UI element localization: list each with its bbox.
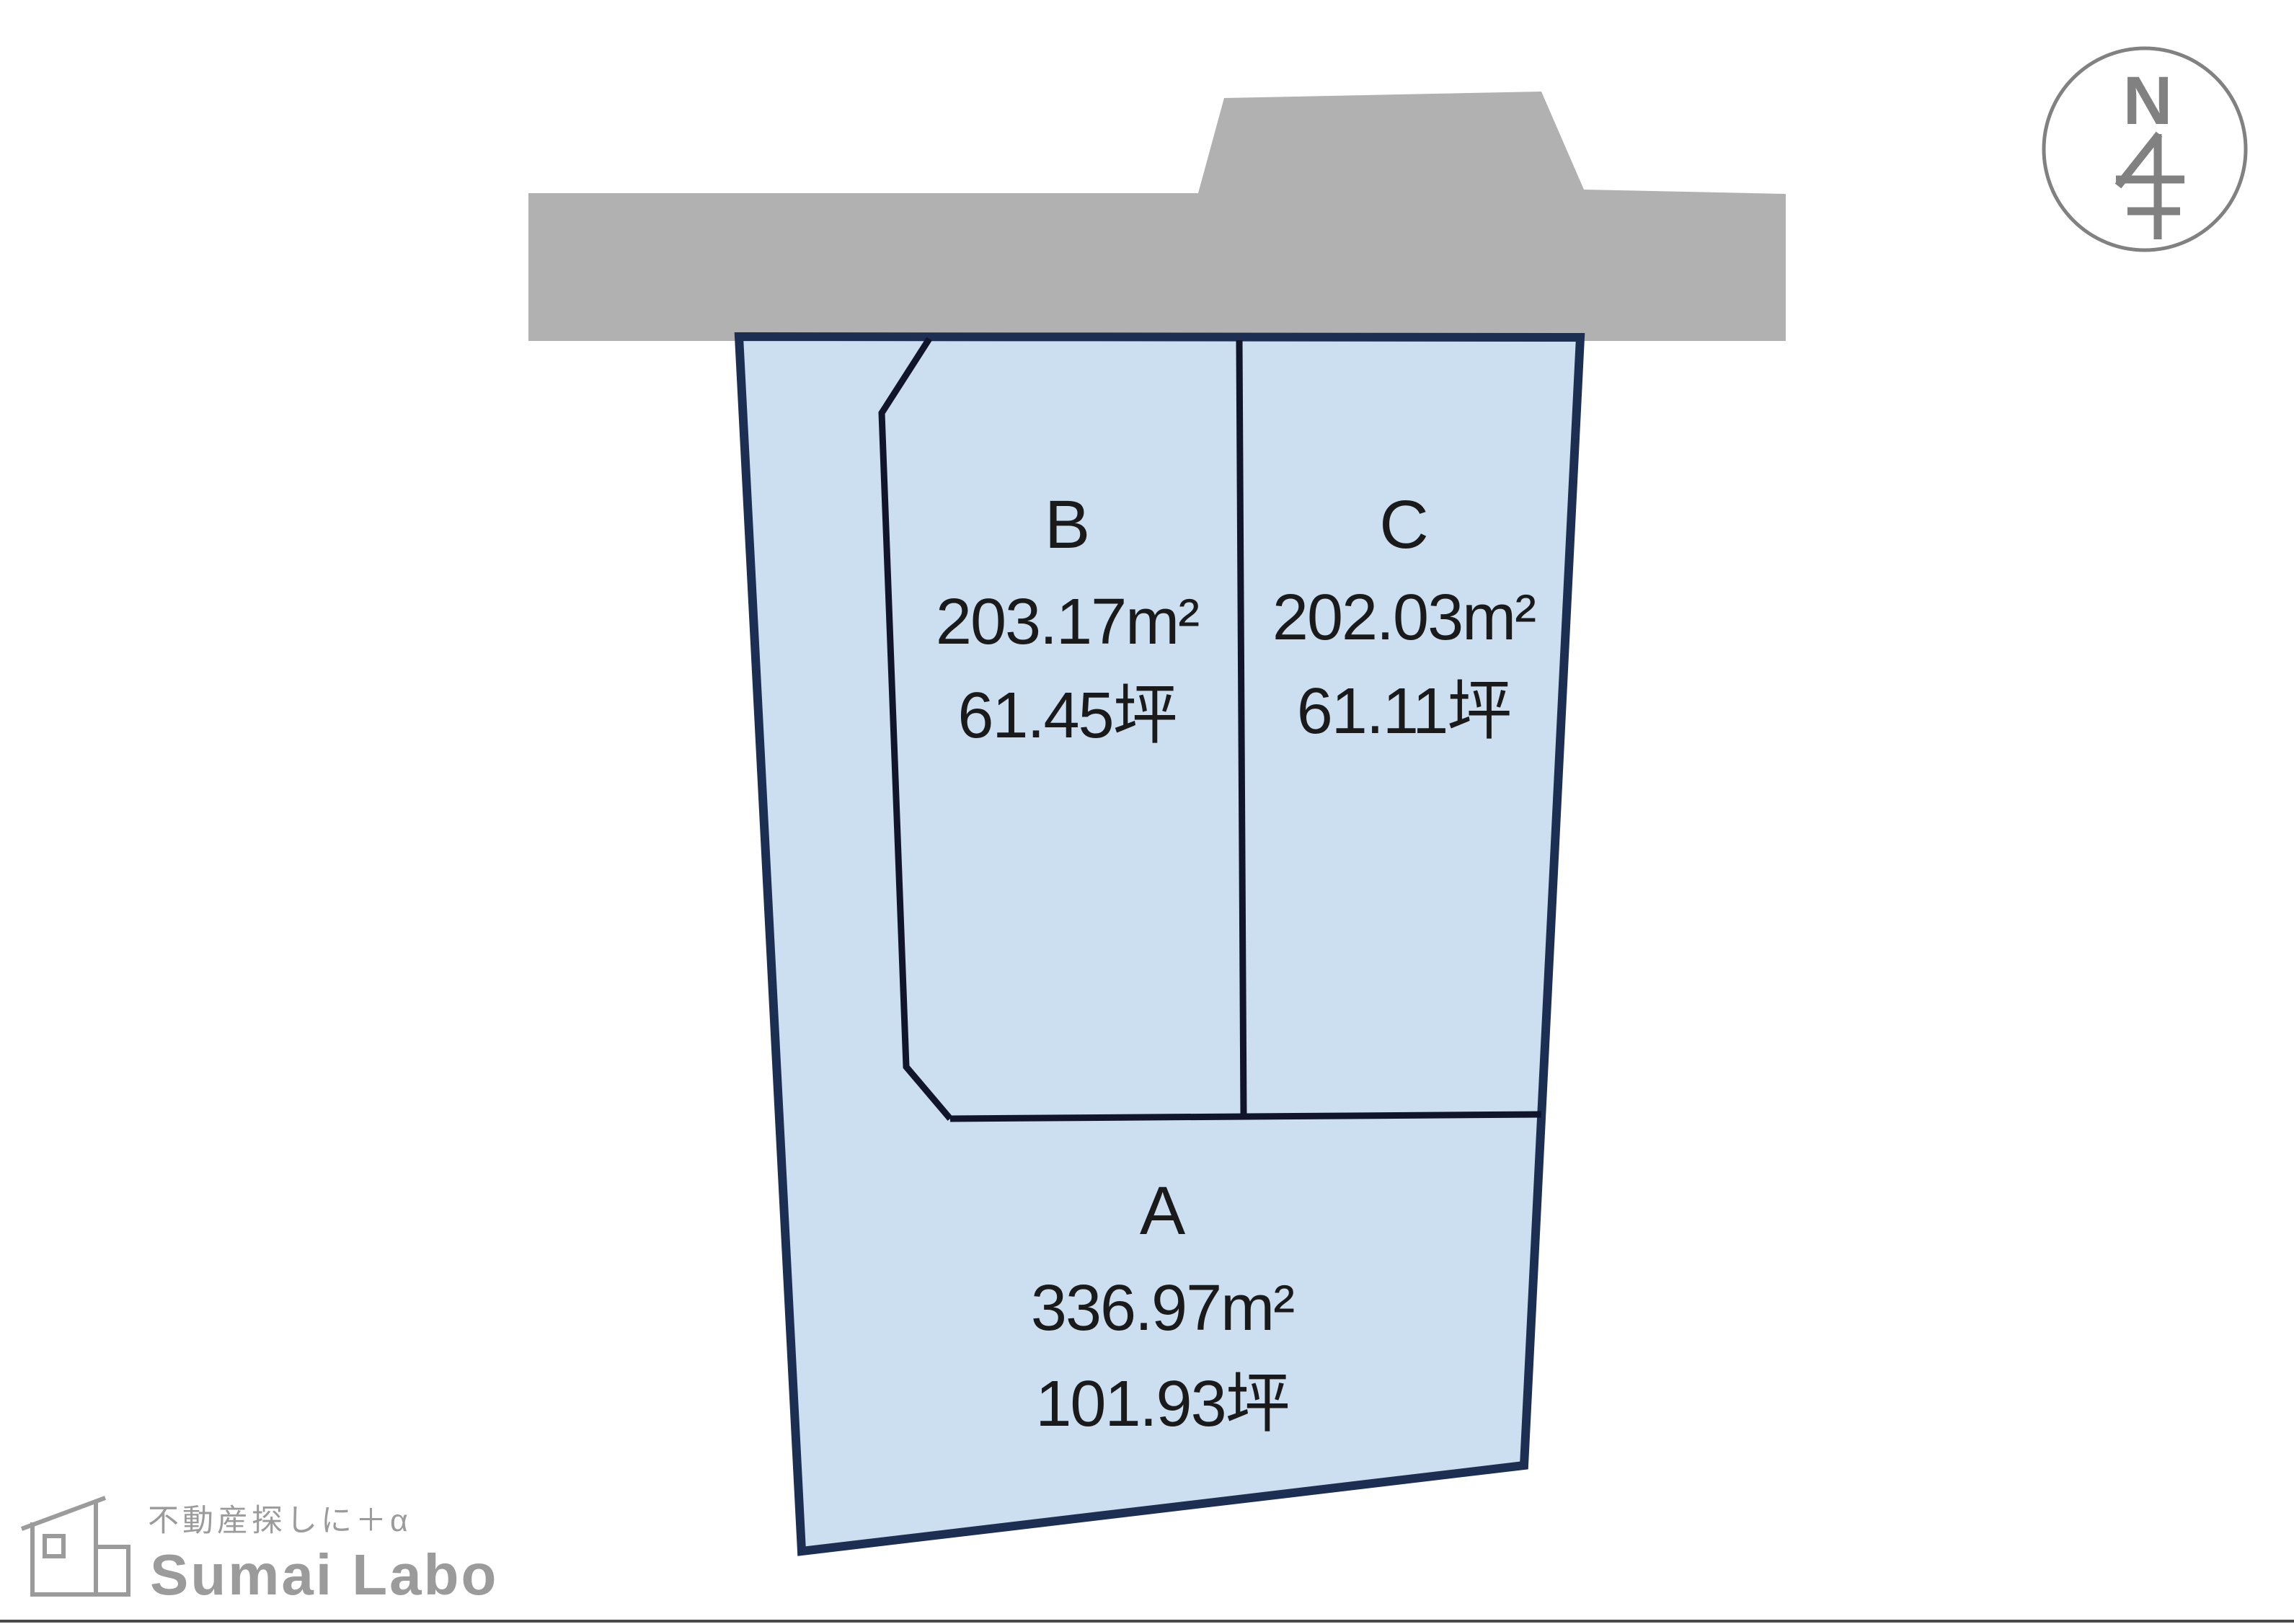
section-b-area-m2: 203.17m² [936, 586, 1199, 658]
section-a-area-m2: 336.97m² [1031, 1272, 1294, 1344]
north-arrow-icon [2116, 134, 2184, 239]
compass-north-label: N [2123, 63, 2173, 139]
house-window-icon [45, 1536, 63, 1556]
logo: 不動産探しに＋α Sumai Labo [22, 1498, 498, 1607]
section-c-area-tsubo: 61.11坪 [1297, 675, 1511, 747]
section-a-label: A [1140, 1173, 1186, 1249]
plot-diagram-canvas: B 203.17m² 61.45坪 C 202.03m² 61.11坪 A 33… [0, 0, 2294, 1624]
section-b-area-tsubo: 61.45坪 [957, 680, 1176, 752]
section-b-label: B [1045, 487, 1089, 563]
logo-tagline: 不動産探しに＋α [148, 1504, 412, 1538]
road-shape [528, 92, 1786, 341]
section-a-area-tsubo: 101.93坪 [1035, 1368, 1288, 1440]
north-compass: N [2044, 48, 2246, 250]
section-c-area-m2: 202.03m² [1272, 582, 1536, 654]
section-c-label: C [1379, 487, 1428, 563]
logo-name: Sumai Labo [150, 1543, 498, 1607]
section-bc-divider-line [1239, 340, 1244, 1117]
land-plot-diagram: B 203.17m² 61.45坪 C 202.03m² 61.11坪 A 33… [0, 0, 2294, 1624]
house-icon [22, 1498, 130, 1594]
